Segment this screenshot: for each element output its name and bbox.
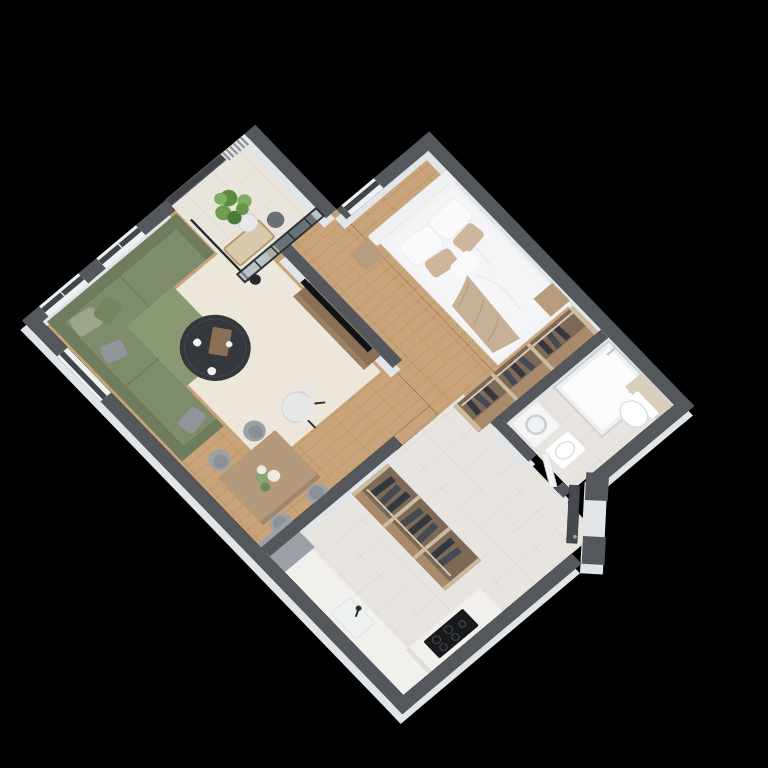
floor-plan-canvas [0,0,768,768]
floor-plan-stage [0,0,768,768]
apartment-plan [16,47,743,735]
